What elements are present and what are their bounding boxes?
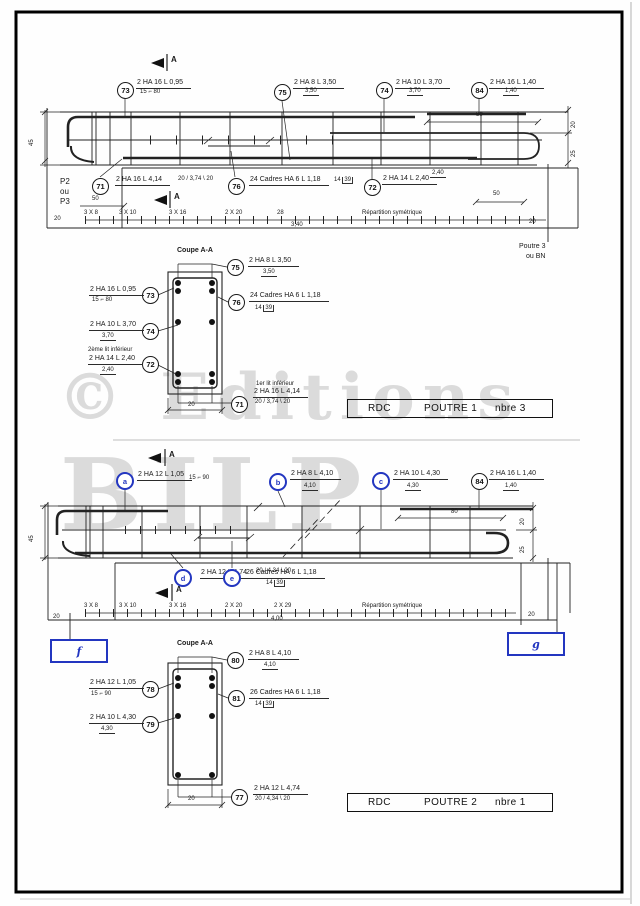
coupe2-label-79: 2 HA 10 L 4,30: [89, 714, 144, 724]
callout-id-84-b1: 84: [475, 86, 483, 95]
callout-circle-72: 72: [364, 179, 381, 196]
callout-sub-a: 15 ⌐ 90: [189, 475, 209, 482]
coupe1-cadre-box: 39: [263, 305, 274, 312]
callout-id-c: c: [379, 477, 383, 486]
section-arrow-label-b1-top: A: [171, 56, 177, 65]
callout-id-73: 73: [121, 86, 129, 95]
callout-circle-e: e: [223, 569, 241, 587]
callout-sub-e: 14 39: [266, 580, 285, 587]
dim-80-b2: 80: [451, 509, 458, 516]
callout-circle-75: 75: [274, 84, 291, 101]
dim-20-bl-b2: 20: [53, 614, 60, 621]
coupe2-label-78: 2 HA 12 L 1,05: [89, 679, 144, 689]
coupe1-circle-74: 74: [142, 323, 159, 340]
support-left-line3: P3: [60, 198, 70, 207]
spacing-2-b2: 3 X 10: [119, 603, 136, 610]
coupe2-id-79: 79: [146, 720, 154, 729]
support-right-line1: Poutre 3: [519, 243, 545, 251]
coupe2-label-80: 2 HA 8 L 4,10: [248, 650, 299, 660]
coupe2-cadre-box: 39: [263, 701, 274, 708]
titlebox2-level: RDC: [368, 797, 391, 808]
callout-circle-c: c: [372, 472, 390, 490]
coupe1-sub-75: 3,50: [261, 269, 277, 277]
section-arrow-label-b2-bottom: A: [176, 586, 182, 595]
callout-circle-71: 71: [92, 178, 109, 195]
coupe1-note-lit2: 2ème lit inférieur: [88, 347, 132, 354]
callout-sub-73: 15 ⌐ 80: [140, 89, 160, 96]
spacing-5-b2: 2 X 29: [274, 603, 291, 610]
coupe1-note-lit1: 1er lit inférieur: [256, 381, 294, 388]
coupe1-id-73: 73: [146, 291, 154, 300]
drawing-page: © Editions BILP: [0, 0, 640, 906]
cadre-count-76: 14: [334, 177, 341, 183]
callout-id-75: 75: [278, 88, 286, 97]
dim-25-right-b2: 25: [520, 546, 527, 553]
coupe2-id-77: 77: [235, 793, 243, 802]
coupe1-sub-72: 2,40: [100, 367, 116, 375]
callout-circle-73: 73: [117, 82, 134, 99]
callout-sub-71: 20 / 3,74 \ 20: [178, 176, 213, 183]
coupe1-id-75: 75: [231, 263, 239, 272]
spacing-2-b1: 3 X 10: [119, 210, 136, 217]
callout-circle-84-b2: 84: [471, 473, 488, 490]
callout-id-71: 71: [96, 182, 104, 191]
callout-sub-72: 2,40: [430, 170, 446, 178]
callout-circle-74: 74: [376, 82, 393, 99]
spacing-1-b2: 3 X 8: [84, 603, 98, 610]
cadre-box-e: 39: [274, 580, 285, 587]
callout-id-b: b: [276, 478, 281, 487]
callout-id-72: 72: [368, 183, 376, 192]
callout-circle-84-b1: 84: [471, 82, 488, 99]
callout-id-74: 74: [380, 86, 388, 95]
coupe1-circle-75: 75: [227, 259, 244, 276]
support-left-line2: ou: [60, 188, 69, 197]
coupe2-sub-81: 14 39: [255, 701, 274, 708]
coupe1-cadre-count: 14: [255, 305, 262, 311]
repartition-b2: Répartition symétrique: [362, 603, 422, 610]
callout-label-e: 26 Cadres HA 6 L 1,18: [245, 569, 325, 579]
callout-id-d: d: [181, 574, 186, 583]
coupe1-sub-71: 20 / 3,74 \ 20: [255, 399, 290, 406]
coupe2-sub-80: 4,10: [262, 662, 278, 670]
marker-box-g: g: [507, 632, 565, 656]
coupe2-circle-78: 78: [142, 681, 159, 698]
section-arrow-label-b1-bottom: A: [174, 193, 180, 202]
callout-sub-c: 4,30: [405, 483, 421, 491]
spacing-1-b1: 3 X 8: [84, 210, 98, 217]
coupe2-sub-77: 20 / 4,34 \ 20: [255, 796, 290, 803]
coupe2-sub-79: 4,30: [99, 726, 115, 734]
dim-height-b1: 45: [29, 139, 36, 146]
dim-25-right-b1: 25: [571, 150, 578, 157]
coupe1-width-dim: 20: [188, 402, 195, 409]
spacing-5-b1: 28: [277, 210, 284, 217]
dim-80-b1: 80: [476, 112, 483, 119]
coupe1-id-76: 76: [232, 298, 240, 307]
callout-sub-75: 3,50: [303, 88, 319, 96]
dim-20-right-b1: 20: [571, 121, 578, 128]
coupe2-label-81: 26 Cadres HA 6 L 1,18: [249, 689, 329, 699]
titlebox1-level: RDC: [368, 403, 391, 414]
coupe2-id-81: 81: [232, 694, 240, 703]
coupe2-width-dim: 20: [188, 796, 195, 803]
callout-circle-76: 76: [228, 178, 245, 195]
coupe1-id-72: 72: [146, 360, 154, 369]
coupe1-id-74: 74: [146, 327, 154, 336]
callout-id-84-b2: 84: [475, 477, 483, 486]
coupe1-label-72: 2 HA 14 L 2,40: [88, 355, 143, 365]
section-arrow-label-b2-top: A: [169, 451, 175, 460]
callout-circle-a: a: [116, 472, 134, 490]
coupe1-sub-76: 14 39: [255, 305, 274, 312]
titlebox1-count: nbre 3: [495, 403, 526, 414]
coupe2-id-78: 78: [146, 685, 154, 694]
marker-letter-g: g: [532, 638, 540, 651]
coupe1-label-71: 2 HA 16 L 4,14: [253, 388, 308, 398]
callout-label-a: 2 HA 12 L 1,05: [137, 471, 192, 481]
spacing-4-b1: 2 X 20: [225, 210, 242, 217]
callout-id-76: 76: [232, 182, 240, 191]
coupe1-label-75: 2 HA 8 L 3,50: [248, 257, 299, 267]
support-left-line1: P2: [60, 178, 70, 187]
coupe1-circle-72: 72: [142, 356, 159, 373]
dim-20-br-b2: 20: [528, 612, 535, 619]
callout-label-72: 2 HA 14 L 2,40: [382, 175, 437, 185]
callout-id-e: e: [230, 574, 234, 583]
dim-20-br-b1: 20: [529, 219, 536, 226]
coupe2-circle-77: 77: [231, 789, 248, 806]
coupe1-circle-73: 73: [142, 287, 159, 304]
callout-label-b: 2 HA 8 L 4,10: [290, 470, 341, 480]
coupe2-circle-79: 79: [142, 716, 159, 733]
dim-20-right-b2: 20: [520, 518, 527, 525]
coupe1-label-73: 2 HA 16 L 0,95: [89, 286, 144, 296]
linework: [0, 0, 640, 906]
callout-label-71: 2 HA 16 L 4,14: [115, 176, 170, 186]
callout-label-c: 2 HA 10 L 4,30: [393, 470, 448, 480]
coupe1-sub-73: 15 ⌐ 80: [92, 297, 112, 304]
coupe2-sub-78: 15 ⌐ 90: [91, 691, 111, 698]
coupe1-label-74: 2 HA 10 L 3,70: [89, 321, 144, 331]
callout-circle-b: b: [269, 473, 287, 491]
coupe1-title: Coupe A-A: [177, 247, 213, 255]
titlebox2-count: nbre 1: [495, 797, 526, 808]
spacing-3-b1: 3 X 16: [169, 210, 186, 217]
dim-total-b1: 3,40: [291, 222, 303, 229]
callout-label-73: 2 HA 16 L 0,95: [136, 79, 191, 89]
coupe2-title: Coupe A-A: [177, 640, 213, 648]
coupe1-circle-76: 76: [228, 294, 245, 311]
dim-height-b2: 45: [29, 535, 36, 542]
dim-50-left-b1: 50: [92, 196, 99, 203]
dim-20-bl-b1: 20: [54, 216, 61, 223]
dim-50-right-b1: 50: [493, 191, 500, 198]
marker-letter-f: f: [77, 645, 82, 658]
dim-total-b2: 4,00: [271, 616, 283, 623]
repartition-b1: Répartition symétrique: [362, 210, 422, 217]
coupe2-label-77: 2 HA 12 L 4,74: [253, 785, 308, 795]
cadre-count-e: 14: [266, 580, 273, 586]
cadre-box-76: 39: [342, 177, 353, 184]
callout-id-a: a: [123, 477, 127, 486]
callout-sub-76: 14 39: [334, 177, 353, 184]
coupe1-id-71: 71: [235, 400, 243, 409]
coupe1-circle-71: 71: [231, 396, 248, 413]
callout-label-76: 24 Cadres HA 6 L 1,18: [249, 176, 329, 186]
support-right-line2: ou BN: [526, 253, 545, 261]
coupe1-label-76: 24 Cadres HA 6 L 1,18: [249, 292, 329, 302]
callout-label-84-b2: 2 HA 16 L 1,40: [489, 470, 544, 480]
callout-sub-74: 3,70: [407, 88, 423, 96]
callout-sub-84-b2: 1,40: [503, 483, 519, 491]
callout-sub-84-b1: 1,40: [503, 88, 519, 96]
coupe1-sub-74: 3,70: [100, 333, 116, 341]
spacing-4-b2: 2 X 20: [225, 603, 242, 610]
callout-sub-b: 4,10: [302, 483, 318, 491]
titlebox2-name: POUTRE 2: [424, 797, 477, 808]
titlebox1-name: POUTRE 1: [424, 403, 477, 414]
spacing-3-b2: 3 X 16: [169, 603, 186, 610]
coupe2-circle-80: 80: [227, 652, 244, 669]
coupe2-circle-81: 81: [228, 690, 245, 707]
marker-box-f: f: [50, 639, 108, 663]
coupe2-cadre-count: 14: [255, 701, 262, 707]
coupe2-id-80: 80: [231, 656, 239, 665]
